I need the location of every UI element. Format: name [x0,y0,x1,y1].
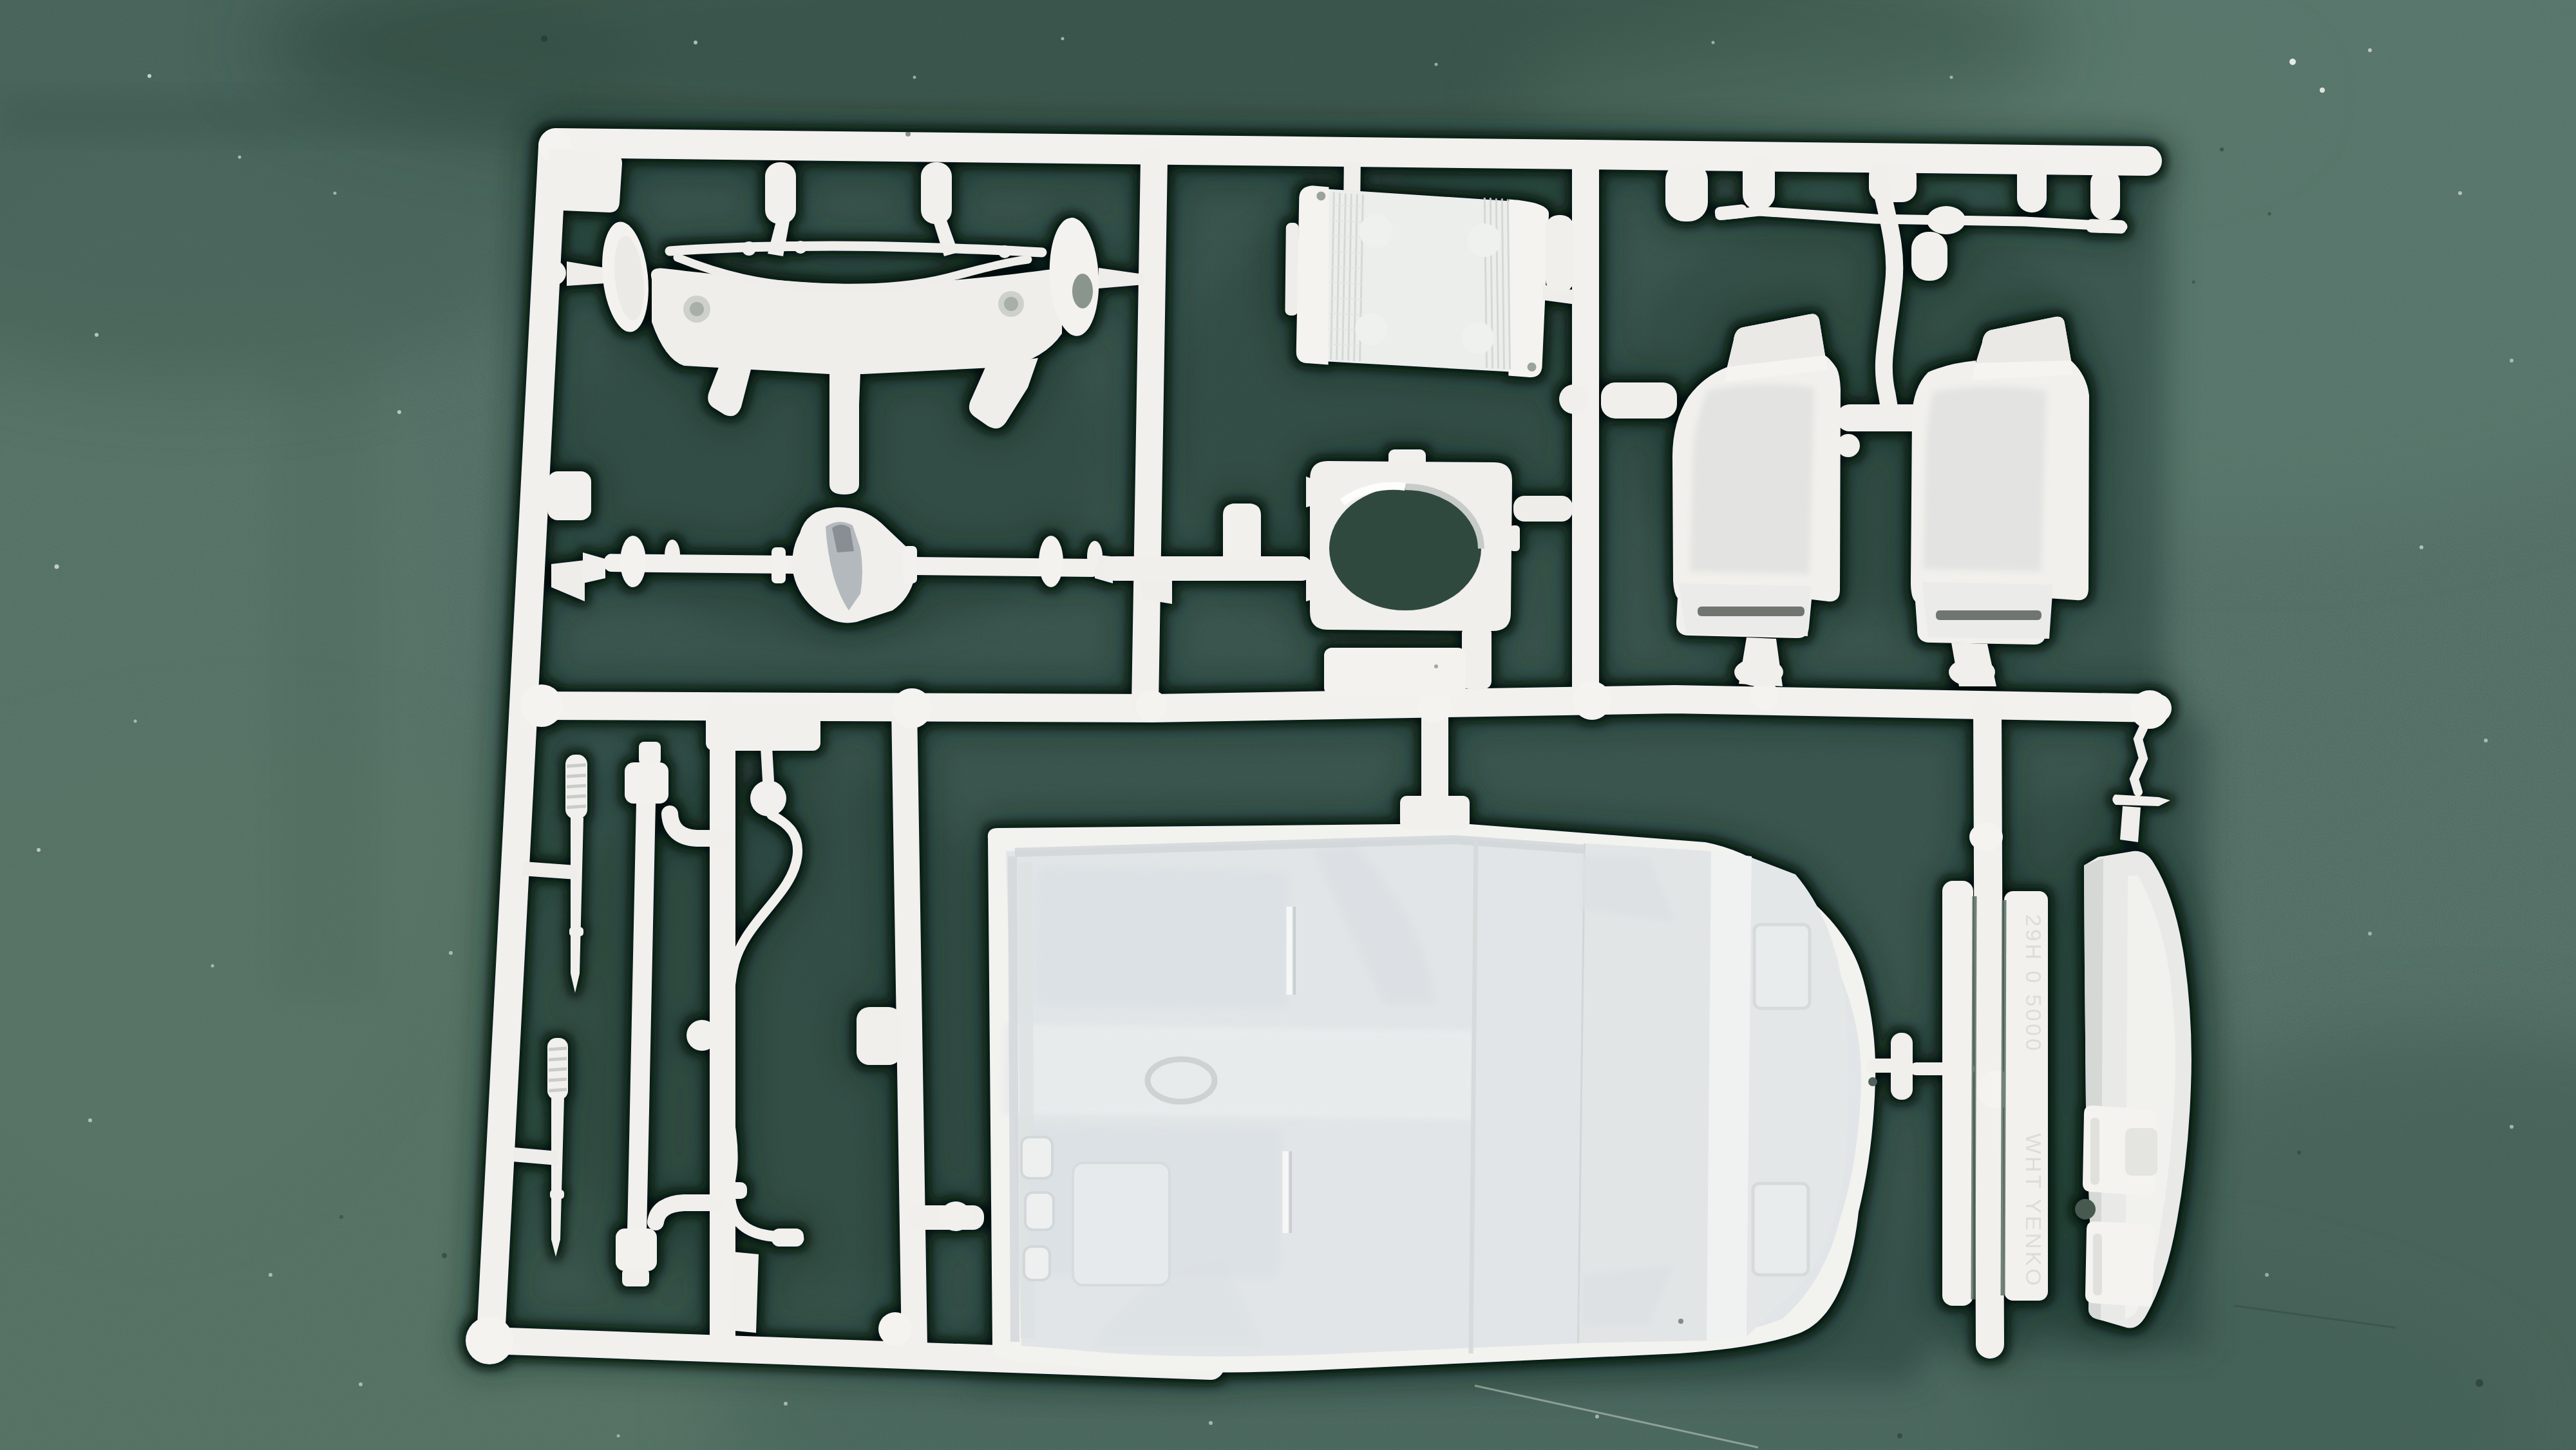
svg-text:WHT YENKO: WHT YENKO [2022,1133,2046,1288]
svg-text:29H 0 5000: 29H 0 5000 [2022,914,2046,1053]
